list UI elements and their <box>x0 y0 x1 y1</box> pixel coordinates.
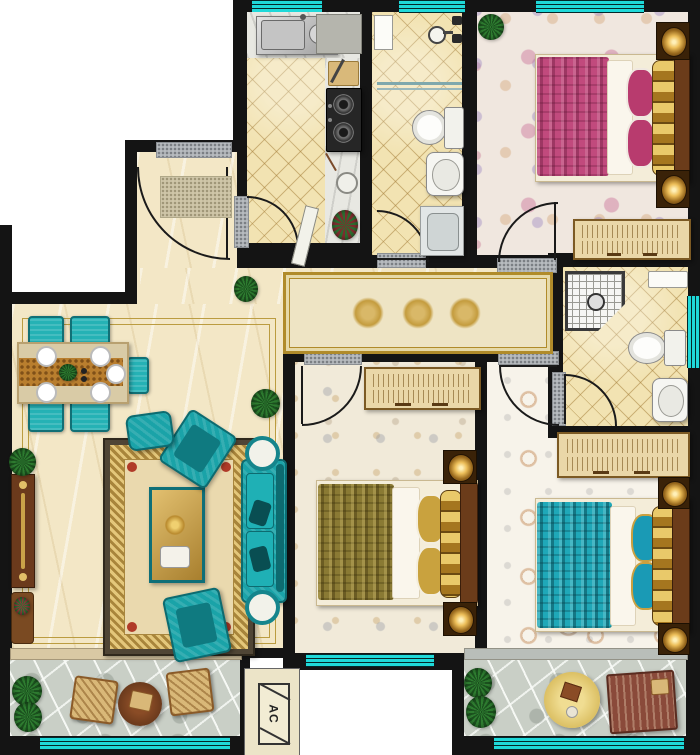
bed3-lamp-bottom <box>662 627 688 653</box>
bed2-blanket-gold <box>318 484 394 600</box>
rug-corner-flower-3 <box>127 622 137 632</box>
bed3-wardrobe-handle-2 <box>634 471 650 474</box>
kitchen-sink-basin <box>261 20 305 50</box>
console-flower-pot <box>11 592 34 644</box>
bed1-blanket-pink <box>537 57 609 176</box>
prep-bowl <box>336 172 358 194</box>
bedroom1-plant <box>478 14 504 40</box>
bathroom-ensuite-door-leaf <box>564 374 566 424</box>
wicker-chair-2 <box>165 667 214 716</box>
bed1-wardrobe-rail-bottom <box>582 241 682 254</box>
bed3-wardrobe <box>557 432 690 478</box>
balcony-right-shrub-2 <box>466 696 496 728</box>
wash-basin-ensuite <box>652 378 688 422</box>
table-cup-1 <box>81 368 87 374</box>
table-centerpiece <box>59 364 77 381</box>
bed3-headboard <box>672 498 690 632</box>
bed1-lamp-top <box>661 27 687 57</box>
hallway-runner-rug <box>283 272 553 354</box>
towel-rail-2 <box>377 88 462 90</box>
sofa <box>241 459 287 603</box>
living-plant-near-sofa <box>251 389 280 418</box>
washing-machine <box>420 206 464 256</box>
plate-3 <box>36 382 57 403</box>
bed1-wardrobe <box>573 219 691 260</box>
valve-stem <box>443 31 453 34</box>
lounger-pillow <box>650 678 669 695</box>
bed2-lamp-bottom <box>448 606 474 634</box>
pot-flowers <box>14 597 30 615</box>
armchair-top-cushion <box>173 423 222 473</box>
bed2-wardrobe-handle-1 <box>395 403 411 406</box>
lounger-mat <box>606 670 678 735</box>
bed3-blanket-teal <box>537 502 612 628</box>
bed1-headboard <box>674 52 690 186</box>
bed3-wardrobe-rail-top <box>567 439 681 453</box>
bathroom-top-window <box>399 0 465 13</box>
balcony-left-shrub-2 <box>14 702 42 732</box>
plate-1 <box>36 346 57 367</box>
hallway-plant <box>234 276 258 302</box>
console-cabinet <box>11 474 35 588</box>
bathroom-top-door-leaf <box>377 258 427 260</box>
bedroom-bottom-right-door-leaf <box>499 365 557 367</box>
balcony-right-table <box>544 672 600 728</box>
wash-basin-top <box>426 152 464 196</box>
balcony-right-table-box <box>560 682 582 703</box>
bed2-headboard <box>460 480 478 606</box>
bed2-wardrobe-rail-top <box>373 374 472 387</box>
rug-corner-flower-2 <box>221 462 231 472</box>
console-knob-bottom <box>19 573 27 581</box>
kitchen-wall-cabinet <box>316 14 362 54</box>
coffee-table <box>149 487 205 583</box>
bed1-wardrobe-handle-1 <box>607 253 621 256</box>
bed1-nightstand-top <box>656 22 690 60</box>
wash-basin-top-bowl <box>432 159 459 190</box>
shower-head-icon <box>587 293 605 311</box>
toilet-top-bowl <box>412 110 447 145</box>
bed2-wardrobe-handle-2 <box>432 403 448 406</box>
sofa-backrest <box>276 464 284 592</box>
floor-plan: AC <box>0 0 700 755</box>
balcony-right-shrub-1 <box>464 668 492 698</box>
toilet-ensuite-tank <box>664 330 686 366</box>
balcony-left-table-tray <box>128 690 153 712</box>
console-slat <box>21 493 25 569</box>
ensuite-shelf <box>648 271 688 288</box>
rug-medallion-1 <box>352 297 384 329</box>
bed3-nightstand-bottom <box>658 623 690 655</box>
side-table-top <box>245 436 280 471</box>
bedroom-middle-window <box>306 654 434 667</box>
side-table-bottom <box>245 590 280 625</box>
balcony-left-table <box>118 682 162 726</box>
valve-handle-1 <box>452 16 462 25</box>
armchair-bottom-cushion <box>175 602 218 648</box>
ac-unit-diagonal-1 <box>260 683 291 701</box>
plate-2 <box>90 346 111 367</box>
bedroom-top-right-door-leaf <box>554 202 556 260</box>
bedroom-middle-door-leaf <box>301 366 303 424</box>
wicker-chair-1 <box>69 675 119 725</box>
bed2-lamp-top <box>448 454 474 482</box>
table-cup-2 <box>81 376 87 382</box>
ac-platform: AC <box>244 668 300 755</box>
washing-machine-door <box>427 213 459 251</box>
plate-5 <box>106 364 126 384</box>
ac-unit-diagonal-2 <box>260 727 291 745</box>
bed1-wardrobe-handle-2 <box>643 253 657 256</box>
stove-burner-bottom <box>333 122 354 143</box>
wash-basin-ensuite-bowl <box>658 385 684 416</box>
bed2-nightstand-top <box>443 450 477 484</box>
bed3-wardrobe-handle-1 <box>593 471 609 474</box>
bed2-wardrobe <box>364 367 481 410</box>
rug-medallion-2 <box>402 297 434 329</box>
stove-knob-2 <box>328 118 332 122</box>
valve-handle-2 <box>452 34 462 43</box>
kitchen-flower-vase <box>332 210 358 240</box>
toilet-ensuite-bowl <box>628 332 666 364</box>
rug-medallion-3 <box>449 297 481 329</box>
kitchen-faucet <box>300 14 306 20</box>
balcony-right-table-cup <box>566 706 578 718</box>
stove-burner-top <box>333 94 354 115</box>
balcony-left-window <box>40 737 230 750</box>
balcony-right-sill <box>464 648 688 660</box>
ac-unit-box: AC <box>258 683 290 745</box>
coffee-table-tray <box>160 546 190 568</box>
bedroom-top-right-window <box>536 0 644 13</box>
bed2-bolsters <box>440 490 462 598</box>
plate-4 <box>90 382 111 403</box>
dining-chair-5 <box>127 357 149 394</box>
doormat <box>160 176 232 218</box>
bed2-nightstand-bottom <box>443 602 477 636</box>
bed2-wardrobe-rail-bottom <box>373 390 472 403</box>
bed3-wardrobe-rail-bottom <box>567 457 681 471</box>
faucet-valve-icon <box>428 26 446 44</box>
towel-rail <box>377 82 462 85</box>
ac-label: AC <box>267 704 281 723</box>
bed3-nightstand-top <box>658 477 690 509</box>
rug-corner-flower-1 <box>127 462 137 472</box>
console-knob-top <box>19 481 27 489</box>
coffee-table-flower <box>164 514 186 536</box>
toilet-top-tank <box>444 107 464 149</box>
balcony-right-window <box>494 737 684 750</box>
bed1-nightstand-bottom <box>656 170 690 208</box>
bathroom-ensuite-window <box>687 296 700 368</box>
bathroom-cabinet <box>374 15 393 50</box>
console-plant-top <box>9 448 36 476</box>
ottoman <box>125 410 176 452</box>
bed3-lamp-top <box>662 481 688 507</box>
wall-left-stub <box>0 225 12 295</box>
bed1-wardrobe-rail-top <box>582 225 682 238</box>
dining-table <box>17 342 129 404</box>
entrance-threshold <box>156 142 232 158</box>
stove-knob-1 <box>328 104 332 108</box>
bed1-lamp-bottom <box>661 175 687 205</box>
